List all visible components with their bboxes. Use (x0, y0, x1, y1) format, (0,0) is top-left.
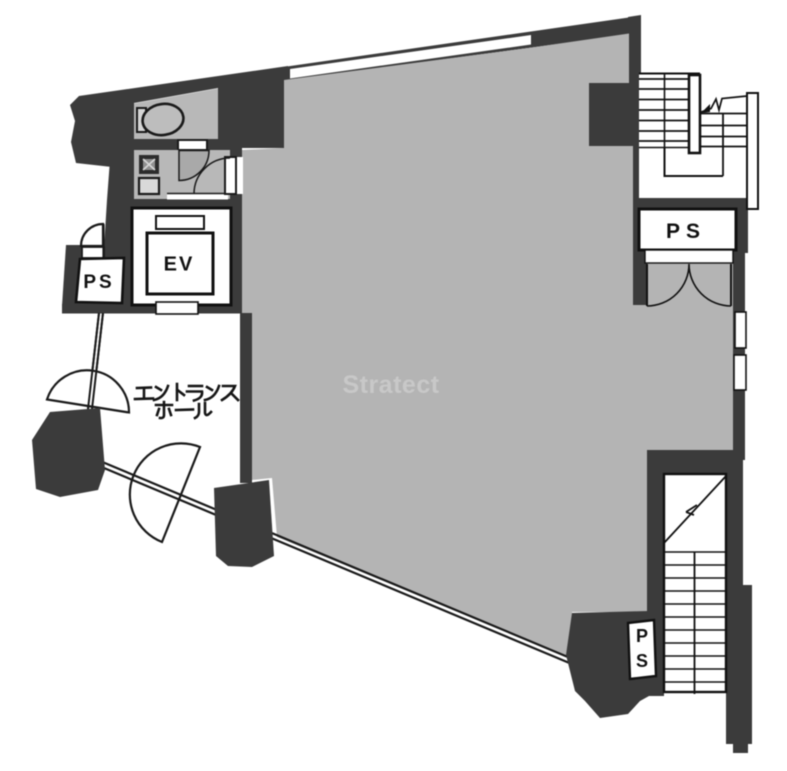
svg-text:EV: EV (164, 254, 195, 276)
svg-text:Stratect: Stratect (342, 371, 439, 399)
svg-text:PS: PS (666, 220, 706, 243)
svg-text:S: S (636, 651, 648, 671)
svg-text:PS: PS (83, 272, 114, 293)
svg-text:P: P (636, 626, 648, 646)
